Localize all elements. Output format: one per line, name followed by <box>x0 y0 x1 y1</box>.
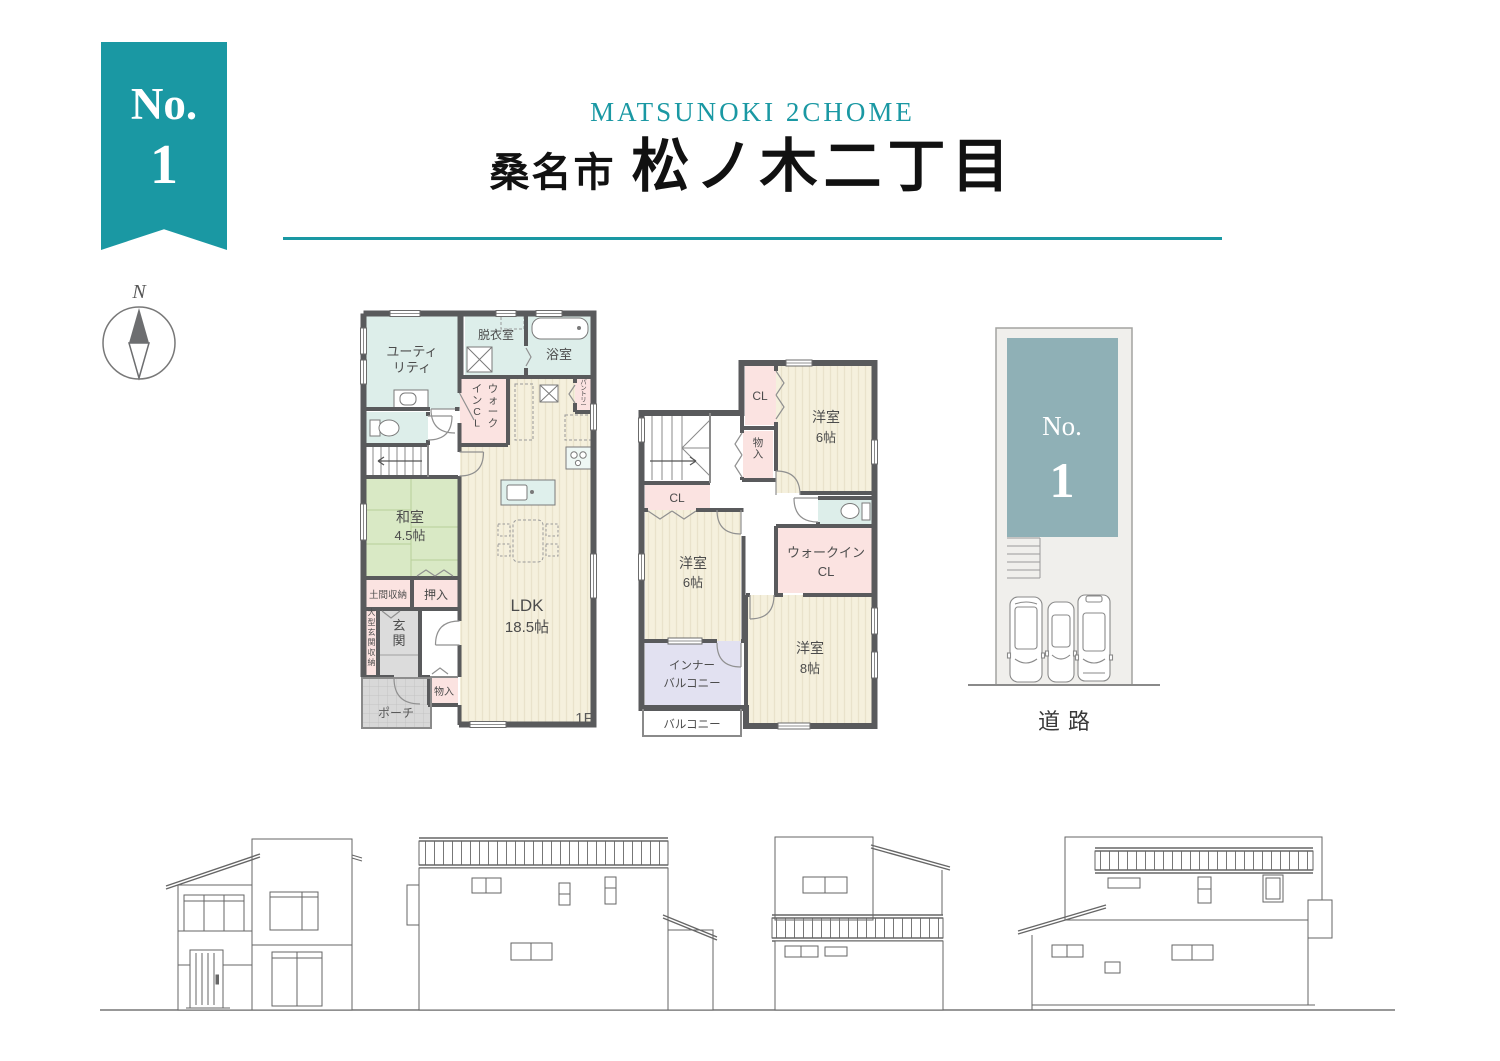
room-label-wic-1: ウォークイン <box>787 545 865 560</box>
room-label-japanese-1: 和室 <box>396 509 424 525</box>
room-label-inner-balcony-1: インナー <box>669 659 715 672</box>
elevation-rear <box>772 837 950 1010</box>
header: MATSUNOKI 2CHOME 桑名市松ノ木二丁目 <box>283 96 1222 196</box>
elevation-front <box>166 839 362 1010</box>
room-label-japanese-2: 4.5帖 <box>394 528 425 543</box>
floor-label-1f: 1F <box>575 710 593 727</box>
room-label-pantry: パントリー <box>580 378 587 409</box>
compass-rose-icon <box>95 303 183 383</box>
room-label-western6b-2: 6帖 <box>683 575 703 590</box>
ribbon-prefix: No. <box>131 82 197 127</box>
room-label-closet-b: CL <box>669 491 685 505</box>
floor-plan-1f: ユーティ リティ 脱衣室 浴室 ウォーク インCL パントリー 和室 4.5帖 … <box>360 308 600 732</box>
floor1-stairs <box>373 446 422 476</box>
floor2-fixtures <box>841 503 870 520</box>
parked-cars <box>1008 595 1113 682</box>
flyer-page: No. 1 N MATSUNOKI 2CHOME 桑名市松ノ木二丁目 <box>0 0 1500 1061</box>
room-label-bath: 浴室 <box>546 347 572 362</box>
building-elevations <box>88 823 1413 1023</box>
room-label-porch: ポーチ <box>378 706 414 720</box>
room-label-western6a-2: 6帖 <box>816 430 836 445</box>
lot-number-ribbon: No. 1 <box>101 42 227 250</box>
room-label-inner-balcony-2: バルコニー <box>663 677 720 690</box>
room-label-wic-col1: ウォーク <box>488 383 499 430</box>
room-label-oshiire: 押入 <box>424 588 448 602</box>
title-city: 桑名市 <box>489 150 615 195</box>
room-label-entrance: 玄関 <box>392 618 405 648</box>
car-compact <box>1046 602 1077 682</box>
room-label-ldk-1: LDK <box>510 596 544 615</box>
room-label-storage-2f: 物入 <box>753 436 764 461</box>
title-underline <box>283 237 1222 240</box>
room-label-western8-2: 8帖 <box>800 661 820 676</box>
elevation-side-right <box>1018 837 1332 1010</box>
site-lot-prefix: No. <box>1042 411 1082 441</box>
compass-north-label: N <box>95 281 183 303</box>
subtitle-romaji: MATSUNOKI 2CHOME <box>283 96 1222 128</box>
floor2-stairs <box>650 415 710 480</box>
room-label-balcony: バルコニー <box>663 718 720 731</box>
room-label-dressing: 脱衣室 <box>478 327 514 342</box>
room-label-wic-2: CL <box>818 564 835 579</box>
room-label-utility-2: リティ <box>393 360 431 375</box>
room-label-doma: 土間収納 <box>369 589 407 601</box>
car-minivan <box>1008 597 1045 682</box>
room-label-western6b-1: 洋室 <box>679 555 707 571</box>
page-title: 桑名市松ノ木二丁目 <box>283 138 1222 196</box>
site-plan: No. 1 道路 <box>968 325 1172 743</box>
road-label: 道路 <box>1038 709 1098 734</box>
room-label-storage: 物入 <box>434 685 454 698</box>
car-sedan <box>1076 595 1113 681</box>
ribbon-number: 1 <box>150 137 178 193</box>
floor-plan-2f: CL 物入 洋室 6帖 CL 洋室 6帖 ウォークイン CL 洋室 8帖 インナ… <box>638 356 880 748</box>
room-label-utility-1: ユーティ <box>386 344 437 359</box>
title-area: 松ノ木二丁目 <box>631 134 1015 199</box>
compass: N <box>95 281 183 388</box>
room-label-closet-a: CL <box>752 389 768 403</box>
elevation-side-left <box>407 838 717 1010</box>
room-label-western6a-1: 洋室 <box>812 409 840 425</box>
site-lot-number: 1 <box>1050 452 1075 508</box>
room-label-western8-1: 洋室 <box>796 640 824 656</box>
room-label-ldk-2: 18.5帖 <box>505 619 549 636</box>
